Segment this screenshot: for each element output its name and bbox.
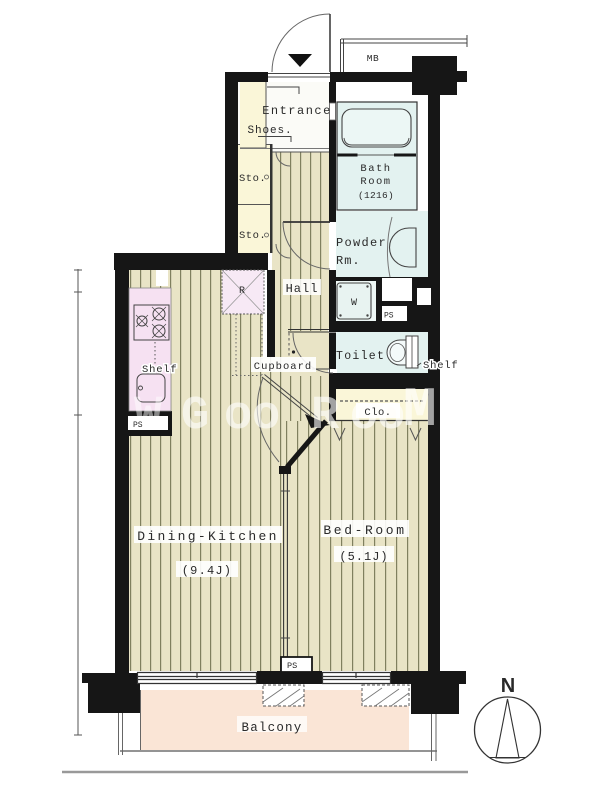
svg-text:Toilet: Toilet [336,350,385,363]
svg-text:M: M [403,378,437,442]
svg-text:(9.4J): (9.4J) [182,564,232,578]
svg-text:(1216): (1216) [358,190,394,201]
svg-text:G: G [181,390,209,443]
svg-text:Shelf: Shelf [142,364,178,376]
svg-text:Bath: Bath [360,163,391,175]
svg-text:MB: MB [367,53,379,64]
svg-text:Shoes.: Shoes. [247,125,292,137]
svg-text:Dining-Kitchen: Dining-Kitchen [137,529,278,544]
svg-text:Entrance: Entrance [262,104,332,118]
svg-text:PS: PS [133,421,143,430]
svg-text:Cupboard: Cupboard [254,361,312,373]
svg-text:PS: PS [287,661,297,671]
svg-text:Powder: Powder [336,236,387,250]
svg-text:Sto.: Sto. [239,173,266,185]
svg-text:R: R [311,390,340,443]
svg-text:Rm.: Rm. [336,254,361,268]
svg-text:Hall: Hall [286,282,319,296]
svg-text:Balcony: Balcony [242,721,303,735]
svg-text:R: R [239,286,245,297]
svg-text:N: N [501,675,515,697]
svg-text:o: o [252,390,280,443]
svg-text:W: W [351,298,357,309]
svg-text:(5.1J): (5.1J) [339,550,388,564]
svg-text:W: W [134,390,163,443]
svg-text:o: o [224,390,252,443]
svg-text:PS: PS [384,312,394,321]
svg-text:Room: Room [360,176,391,188]
svg-text:Clo.: Clo. [364,407,391,419]
svg-text:Shelf: Shelf [423,360,459,372]
svg-text:Bed-Room: Bed-Room [323,523,406,538]
svg-text:Sto.: Sto. [239,230,266,242]
